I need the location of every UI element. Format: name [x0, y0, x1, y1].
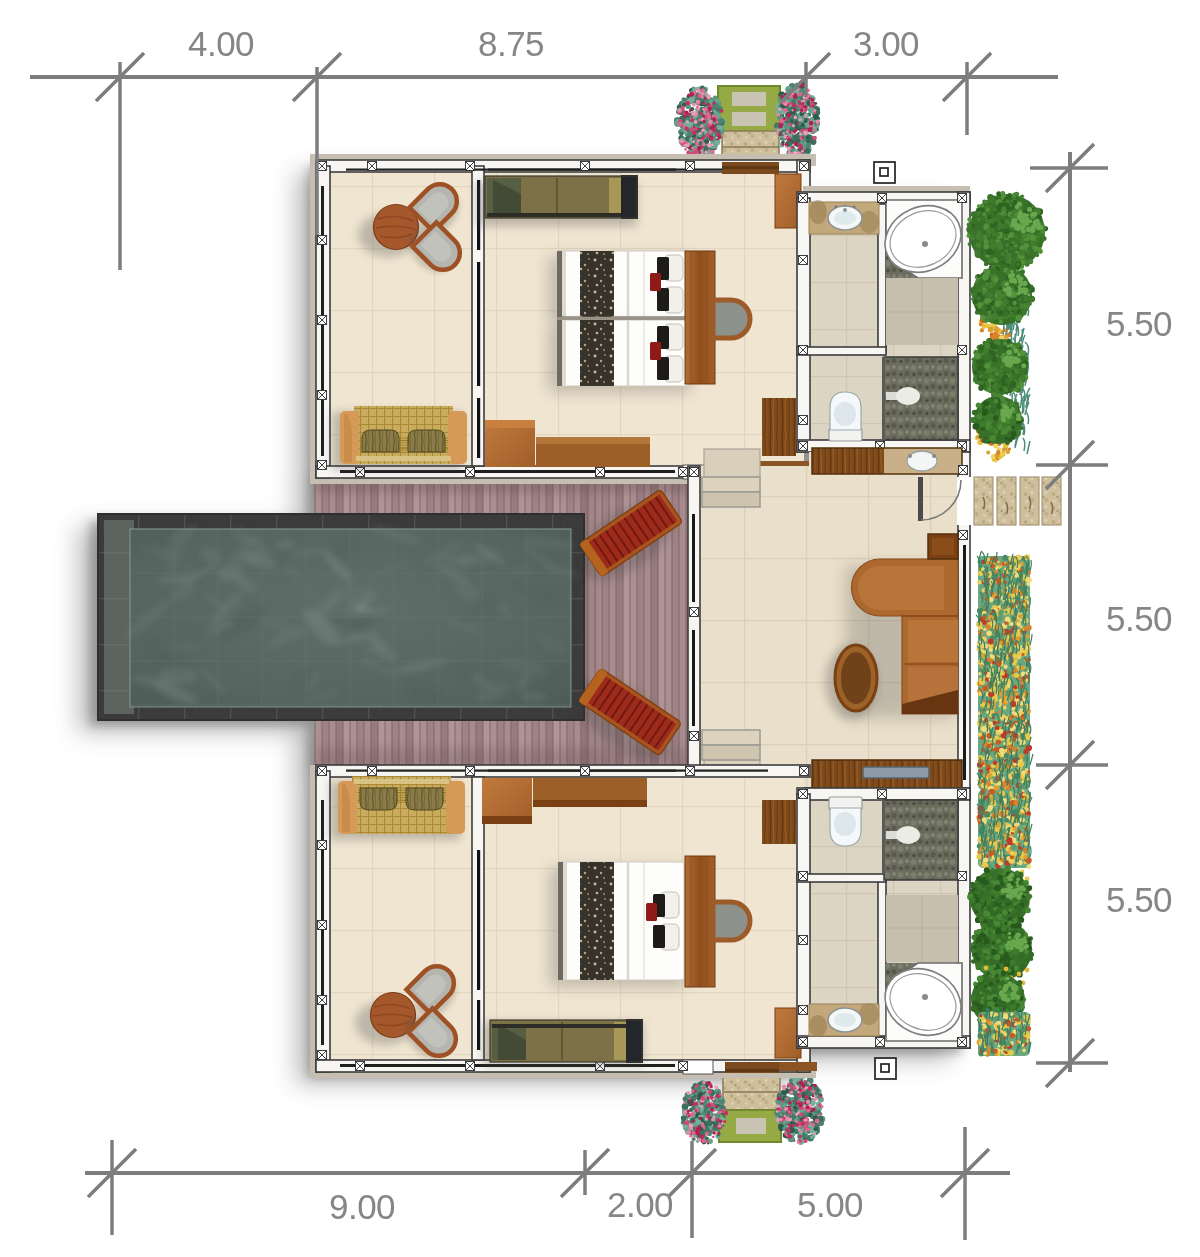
svg-text:3.00: 3.00 [853, 24, 919, 63]
svg-text:9.00: 9.00 [329, 1187, 395, 1226]
svg-text:5.50: 5.50 [1106, 304, 1172, 343]
svg-text:8.75: 8.75 [478, 24, 544, 63]
svg-text:2.00: 2.00 [607, 1185, 673, 1224]
svg-text:5.50: 5.50 [1106, 880, 1172, 919]
svg-text:4.00: 4.00 [188, 24, 254, 63]
svg-text:5.00: 5.00 [797, 1185, 863, 1224]
svg-text:5.50: 5.50 [1106, 599, 1172, 638]
